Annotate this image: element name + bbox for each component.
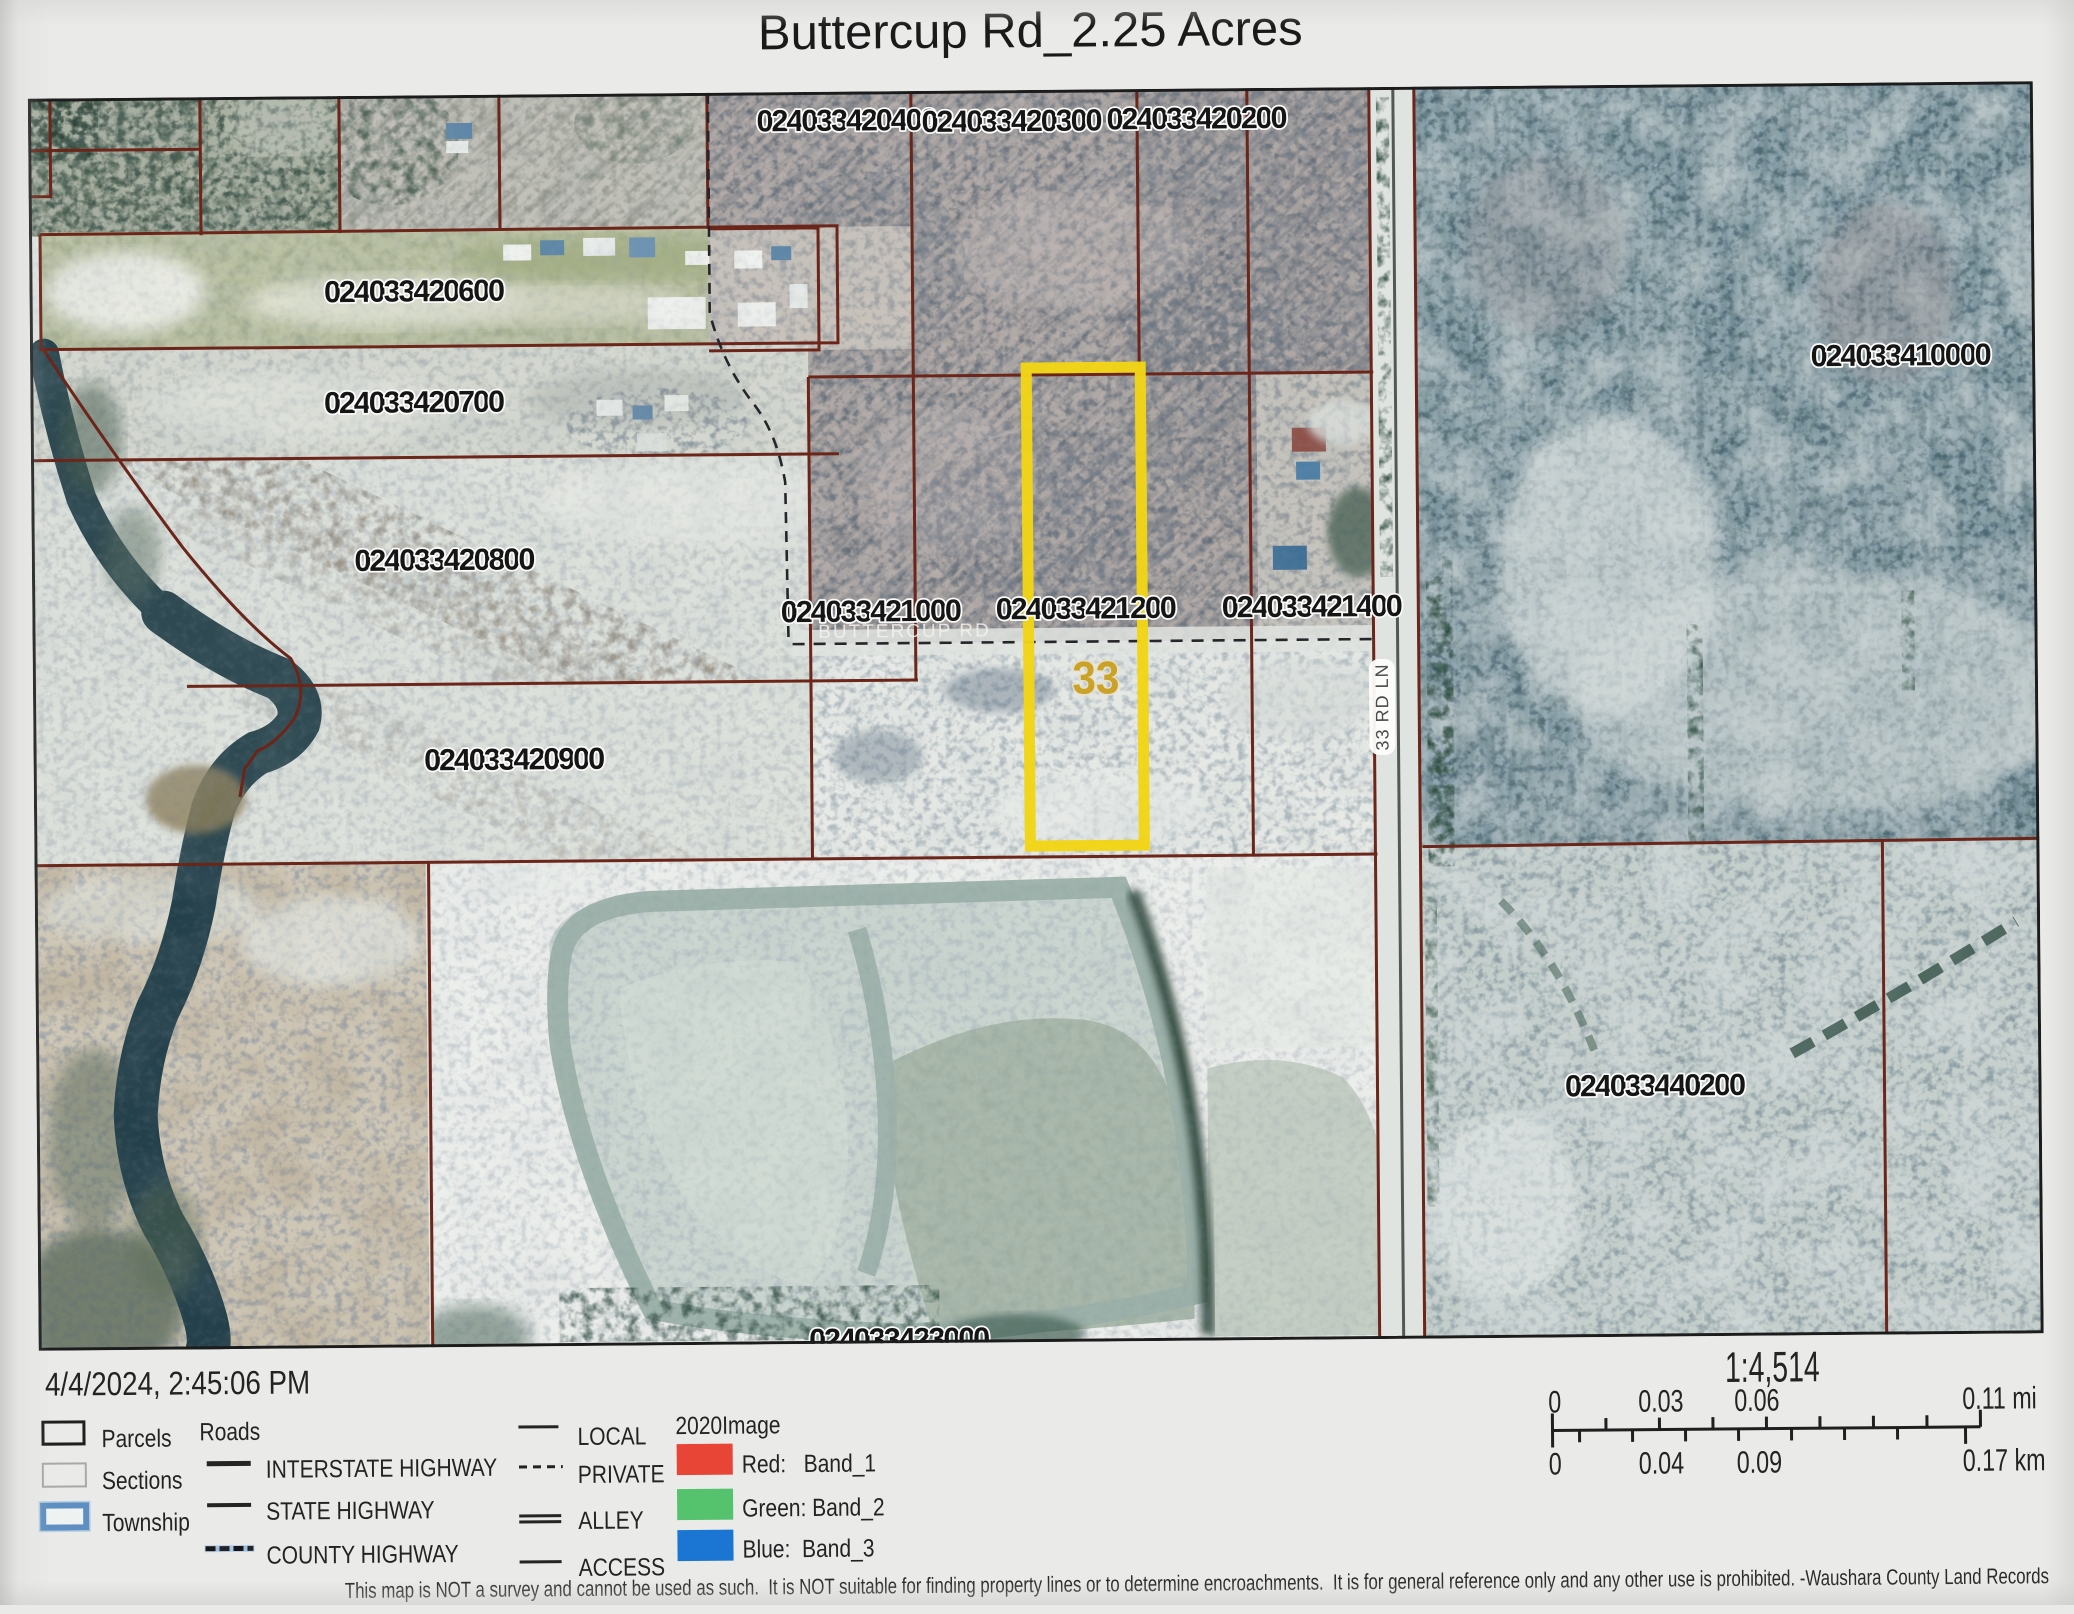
svg-text:024033420400: 024033420400 [756,103,937,139]
svg-text:BUTTERCUP RD: BUTTERCUP RD [818,620,991,643]
svg-text:024033440200: 024033440200 [1565,1068,1746,1104]
svg-text:024033423000: 024033423000 [809,1321,990,1350]
svg-text:024033420800: 024033420800 [354,542,535,578]
svg-text:024033420200: 024033420200 [1106,101,1287,137]
svg-text:33: 33 [1072,651,1119,703]
svg-text:024033420900: 024033420900 [424,742,605,778]
svg-text:024033420600: 024033420600 [324,274,505,310]
svg-text:024033410000: 024033410000 [1810,338,1991,374]
svg-text:024033421400: 024033421400 [1222,589,1403,625]
svg-text:024033420700: 024033420700 [324,385,505,421]
svg-text:024033420300: 024033420300 [921,103,1102,139]
svg-text:024033421200: 024033421200 [996,591,1177,627]
svg-text:33 RD LN: 33 RD LN [1372,663,1393,750]
